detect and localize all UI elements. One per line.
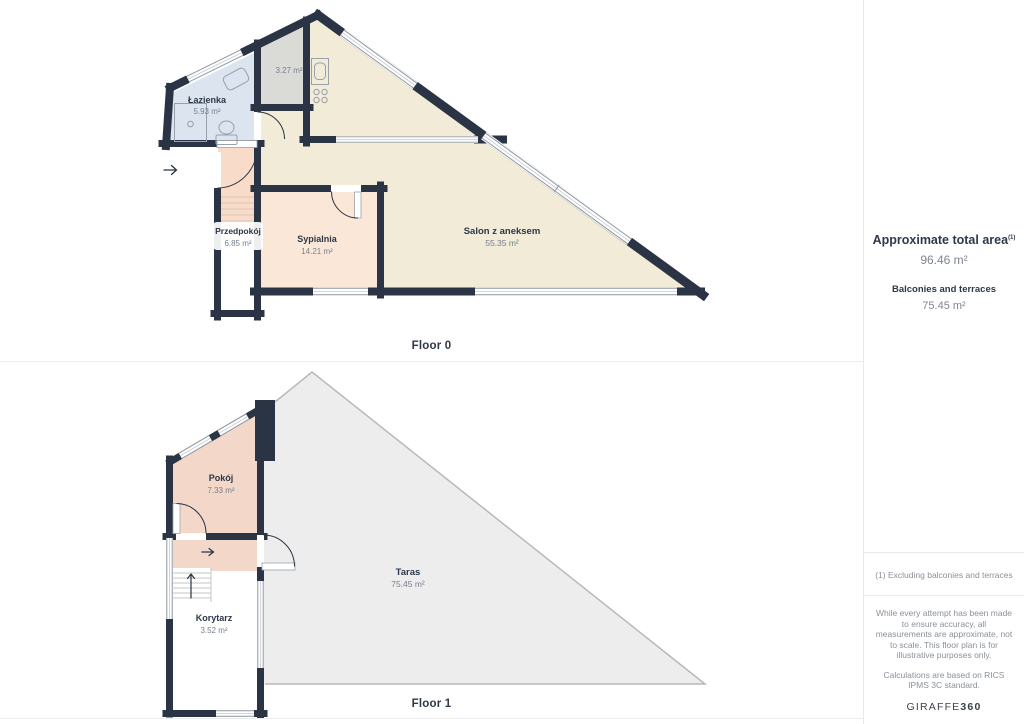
window-bedroom xyxy=(313,288,368,295)
floor0-label: Floor 0 xyxy=(0,340,863,352)
floor1-section: Pokój 7.33 m² Taras 75.45 m² Korytarz 3.… xyxy=(0,362,863,719)
room-garderoba-area: 3.27 m² xyxy=(275,66,302,75)
room-lazienka-name: Łazienka xyxy=(188,95,227,105)
footnote: (1) Excluding balconies and terraces xyxy=(864,552,1024,596)
room-korytarz-area: 3.52 m² xyxy=(200,626,227,635)
footnote-marker: (1) xyxy=(1008,235,1015,241)
floor0-room-fills xyxy=(170,15,703,312)
total-area-value: 96.46 m² xyxy=(864,253,1024,267)
standard-text: Calculations are based on RICS IPMS 3C s… xyxy=(875,670,1013,691)
room-sypialnia-area: 14.21 m² xyxy=(301,247,333,256)
sidebar: Approximate total area(1) 96.46 m² Balco… xyxy=(863,0,1024,724)
room-przedpokoj-area: 6.85 m² xyxy=(224,239,251,248)
floor1-label: Floor 1 xyxy=(0,698,863,710)
total-area-label: Approximate total area(1) xyxy=(864,233,1024,247)
room-taras-fill xyxy=(264,372,705,684)
floor1-plan: Pokój 7.33 m² Taras 75.45 m² Korytarz 3.… xyxy=(0,362,863,718)
room-pokoj-area: 7.33 m² xyxy=(207,486,234,495)
floor0-plan: Łazienka 5.93 m² 3.27 m² Przedpokój 6.85… xyxy=(0,0,863,340)
disclaimer-text: While every attempt has been made to ens… xyxy=(875,608,1013,661)
window-bottom-wall xyxy=(216,711,254,716)
room-przedpokoj-name: Przedpokój xyxy=(215,226,261,236)
balconies-value: 75.45 m² xyxy=(864,300,1024,312)
stair-void-fill xyxy=(221,240,254,312)
room-sypialnia-name: Sypialnia xyxy=(297,234,338,244)
legal-notes: While every attempt has been made to ens… xyxy=(864,595,1024,712)
glass-partition xyxy=(336,137,478,142)
area-summary: Approximate total area(1) 96.46 m² Balco… xyxy=(864,233,1024,312)
window-left-wall xyxy=(167,538,172,619)
window-right-wall xyxy=(258,581,263,668)
room-salon-name: Salon z aneksem xyxy=(464,226,541,237)
floorplan-page: Łazienka 5.93 m² 3.27 m² Przedpokój 6.85… xyxy=(0,0,1024,724)
room-salon-area: 55.35 m² xyxy=(485,238,519,248)
floorplan-main: Łazienka 5.93 m² 3.27 m² Przedpokój 6.85… xyxy=(0,0,863,724)
floor0-section: Łazienka 5.93 m² 3.27 m² Przedpokój 6.85… xyxy=(0,0,863,362)
room-pokoj-name: Pokój xyxy=(209,473,234,483)
brand-logo: GIRAFFE360 xyxy=(875,702,1013,713)
window-salon-bottom xyxy=(475,288,677,295)
room-taras-area: 75.45 m² xyxy=(391,579,425,589)
balconies-label: Balconies and terraces xyxy=(864,284,1024,295)
entrance-arrow-icon xyxy=(164,166,177,175)
room-korytarz-name: Korytarz xyxy=(196,613,233,623)
room-taras-name: Taras xyxy=(396,567,421,578)
room-lazienka-area: 5.93 m² xyxy=(193,107,220,116)
room-pokoj-fill xyxy=(172,409,260,533)
